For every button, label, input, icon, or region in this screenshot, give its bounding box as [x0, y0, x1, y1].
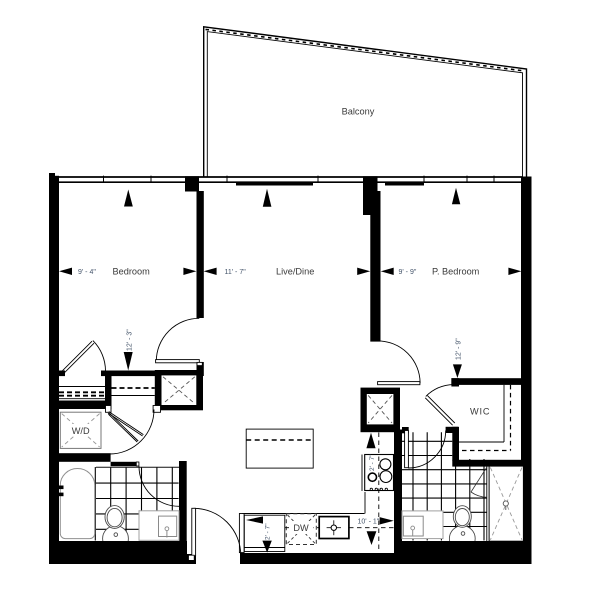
svg-text:WIC: WIC: [470, 407, 490, 417]
svg-text:DW: DW: [293, 523, 309, 533]
svg-text:P. Bedroom: P. Bedroom: [432, 267, 480, 277]
svg-text:9' - 9": 9' - 9": [399, 269, 417, 276]
svg-text:W/D: W/D: [72, 426, 90, 436]
svg-text:Balcony: Balcony: [342, 107, 375, 117]
svg-text:2' - 7": 2' - 7": [369, 454, 376, 471]
svg-text:12' - 9": 12' - 9": [456, 338, 463, 360]
svg-text:10' - 1": 10' - 1": [358, 518, 380, 525]
svg-text:2' - 7": 2' - 7": [265, 523, 272, 540]
svg-text:12' - 3": 12' - 3": [127, 329, 134, 351]
svg-text:9' - 4": 9' - 4": [78, 269, 96, 276]
svg-text:Live/Dine: Live/Dine: [276, 267, 314, 277]
svg-text:11' - 7": 11' - 7": [225, 269, 247, 276]
svg-text:Bedroom: Bedroom: [113, 267, 151, 277]
